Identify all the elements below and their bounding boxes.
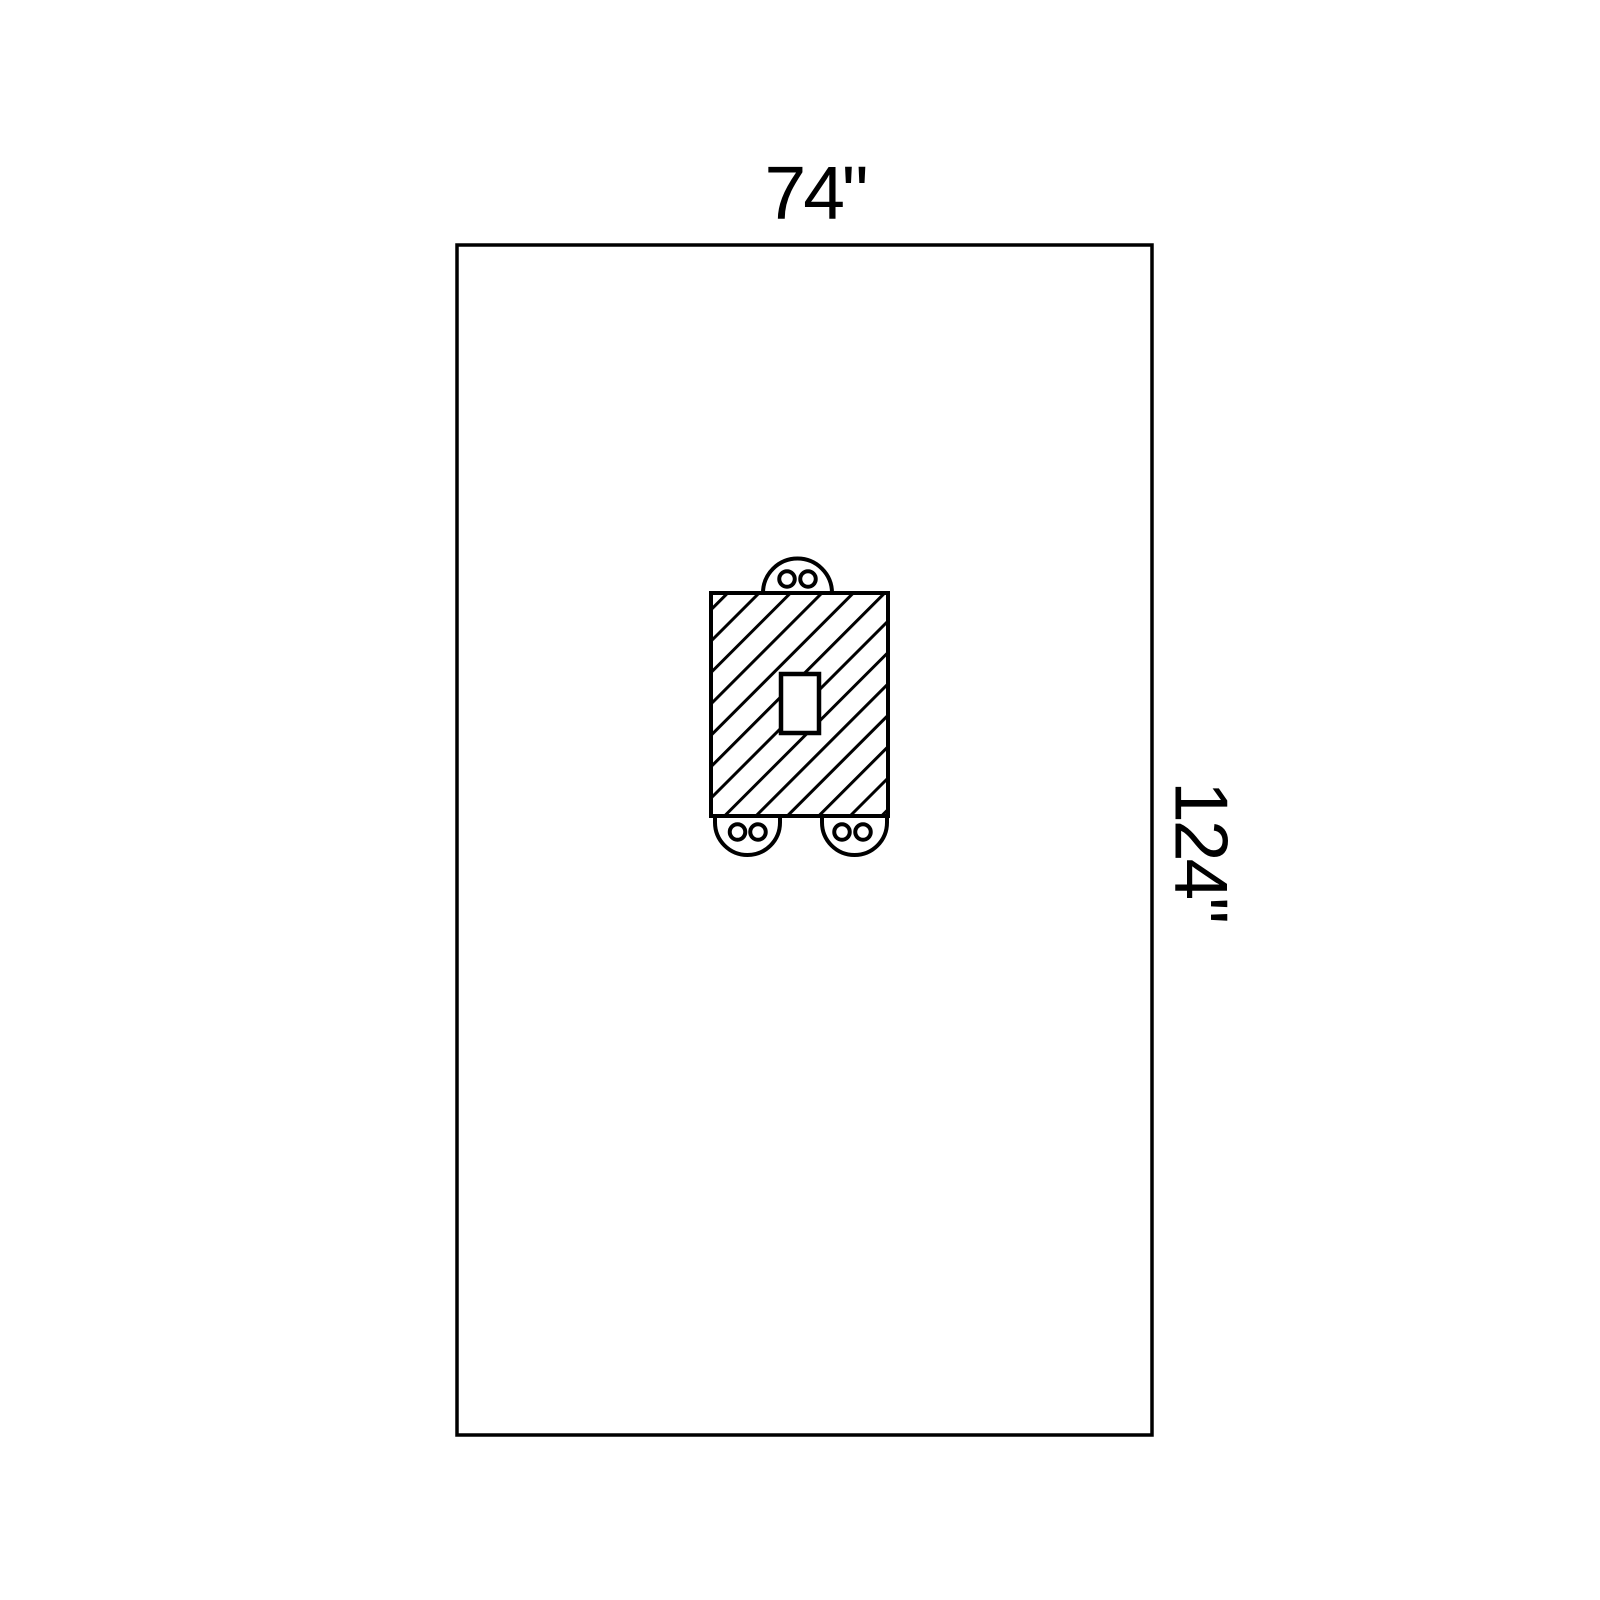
drape-sheet-outline [457, 245, 1152, 1435]
tube-holder-hole-top-right [800, 571, 816, 587]
tube-holder-hole-top-left [779, 571, 795, 587]
fenestration-assembly [711, 559, 888, 856]
tube-holder-hole-bottomleft-2 [750, 824, 766, 840]
tube-holder-hole-bottomright-2 [855, 824, 871, 840]
tube-holder-hole-bottomright-1 [834, 824, 850, 840]
drape-dimension-diagram: 74" 124" [0, 0, 1600, 1600]
fenestration-aperture [781, 674, 819, 733]
drape-line-drawing [0, 0, 1600, 1600]
tube-holder-hole-bottomleft-1 [730, 824, 746, 840]
